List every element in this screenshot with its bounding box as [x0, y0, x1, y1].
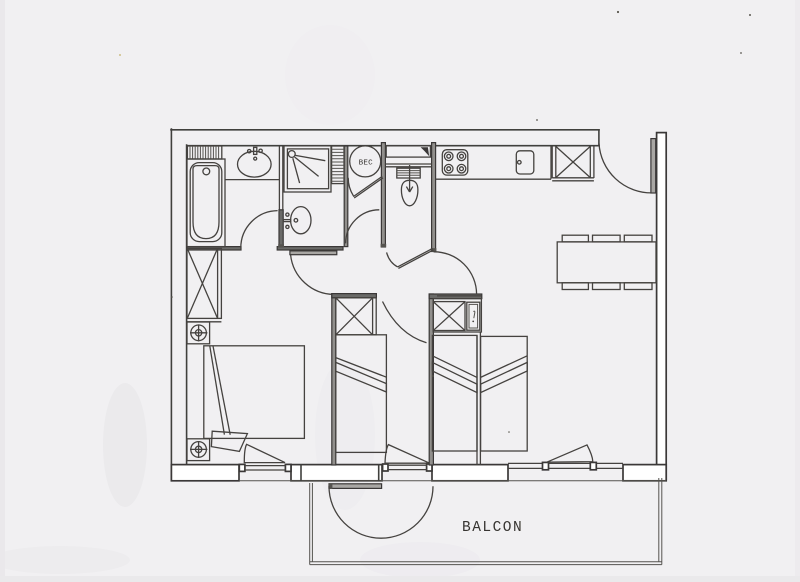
svg-text:BEC: BEC	[359, 160, 374, 168]
svg-text:BALCON: BALCON	[462, 520, 523, 536]
